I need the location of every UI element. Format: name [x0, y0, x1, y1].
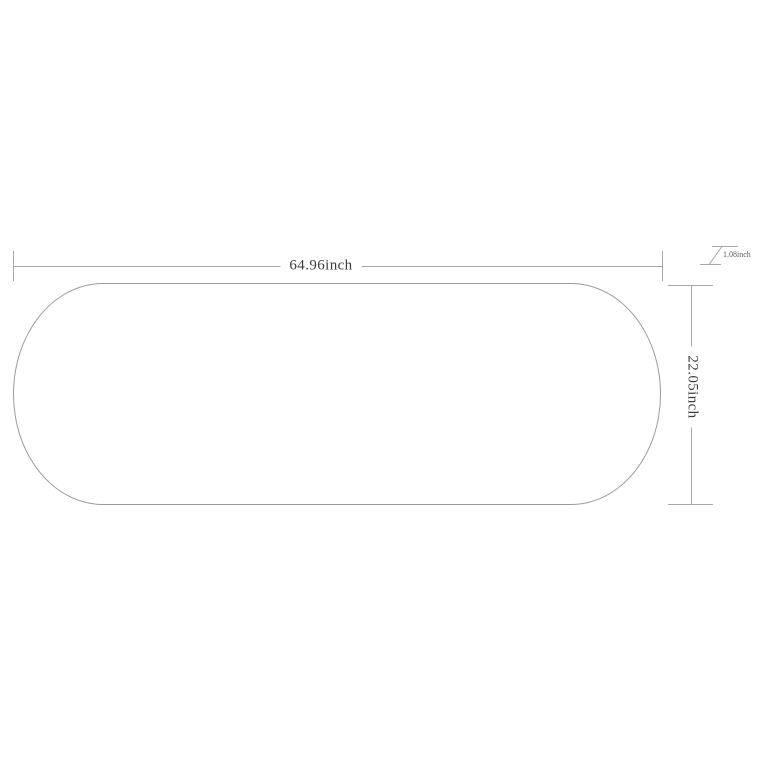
tabletop-outline	[13, 283, 661, 505]
thickness-symbol-bottom-line	[700, 264, 721, 265]
diagram-canvas: 64.96inch 22.05inch 1.08inch	[0, 0, 765, 765]
depth-dimension-tick-top	[668, 285, 713, 286]
depth-dimension-label: 22.05inch	[684, 346, 701, 427]
thickness-dimension-label: 1.08inch	[723, 250, 751, 259]
width-dimension-tick-left	[13, 251, 14, 281]
depth-dimension-tick-bottom	[668, 504, 713, 505]
width-dimension-label: 64.96inch	[280, 258, 361, 275]
thickness-symbol-diagonal-line	[709, 246, 723, 264]
width-dimension-tick-right	[662, 251, 663, 281]
thickness-symbol-top-line	[712, 246, 738, 247]
